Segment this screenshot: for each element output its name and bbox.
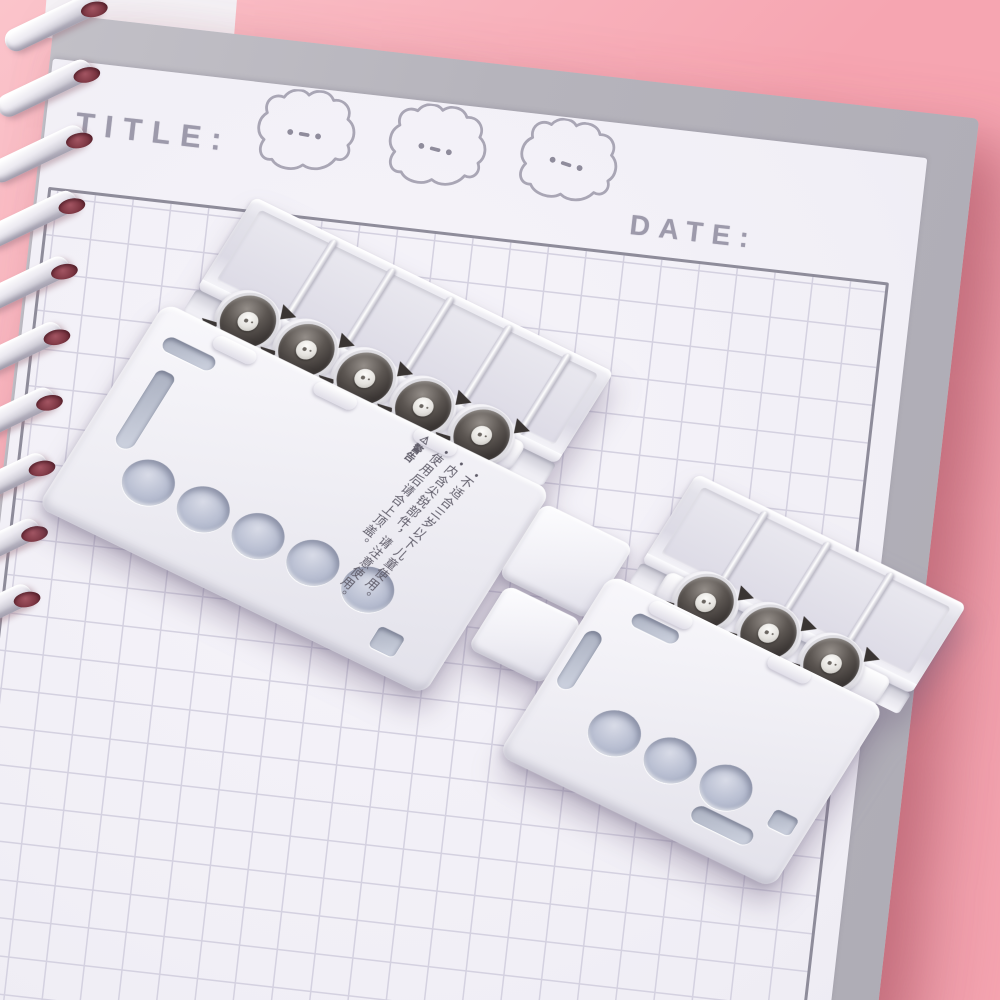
slot-cutout (112, 368, 177, 452)
ring-tube (0, 384, 58, 449)
pencil-hole (222, 505, 294, 568)
ring-tube (0, 187, 81, 252)
page-date-label: DATE: (628, 209, 759, 255)
bear-doodle (245, 87, 367, 176)
ring-tube (0, 318, 66, 383)
blade-screw (292, 337, 321, 363)
blade-screw (754, 620, 783, 646)
blade-screw (691, 590, 720, 616)
slot-cutout (766, 808, 800, 836)
pencil-hole (579, 702, 651, 765)
ring-tube (0, 581, 36, 646)
blade-screw (467, 423, 496, 449)
ring-tube (0, 122, 88, 187)
blade-screw (409, 394, 438, 420)
ring-tube (0, 56, 96, 121)
pencil-hole (634, 729, 706, 792)
bear-doodle (502, 109, 633, 213)
photo-scene: TITLE: DATE: (0, 0, 1000, 1000)
ring-tube (0, 253, 73, 318)
slot-cutout (160, 335, 219, 373)
bear-doodle (373, 98, 500, 195)
blade-screw (817, 651, 846, 677)
blade-screw (350, 366, 379, 392)
slot-cutout (368, 625, 406, 658)
pencil-hole (112, 451, 184, 514)
blade-screw (234, 309, 263, 335)
pencil-hole (167, 478, 239, 541)
binding-ring (0, 0, 125, 55)
